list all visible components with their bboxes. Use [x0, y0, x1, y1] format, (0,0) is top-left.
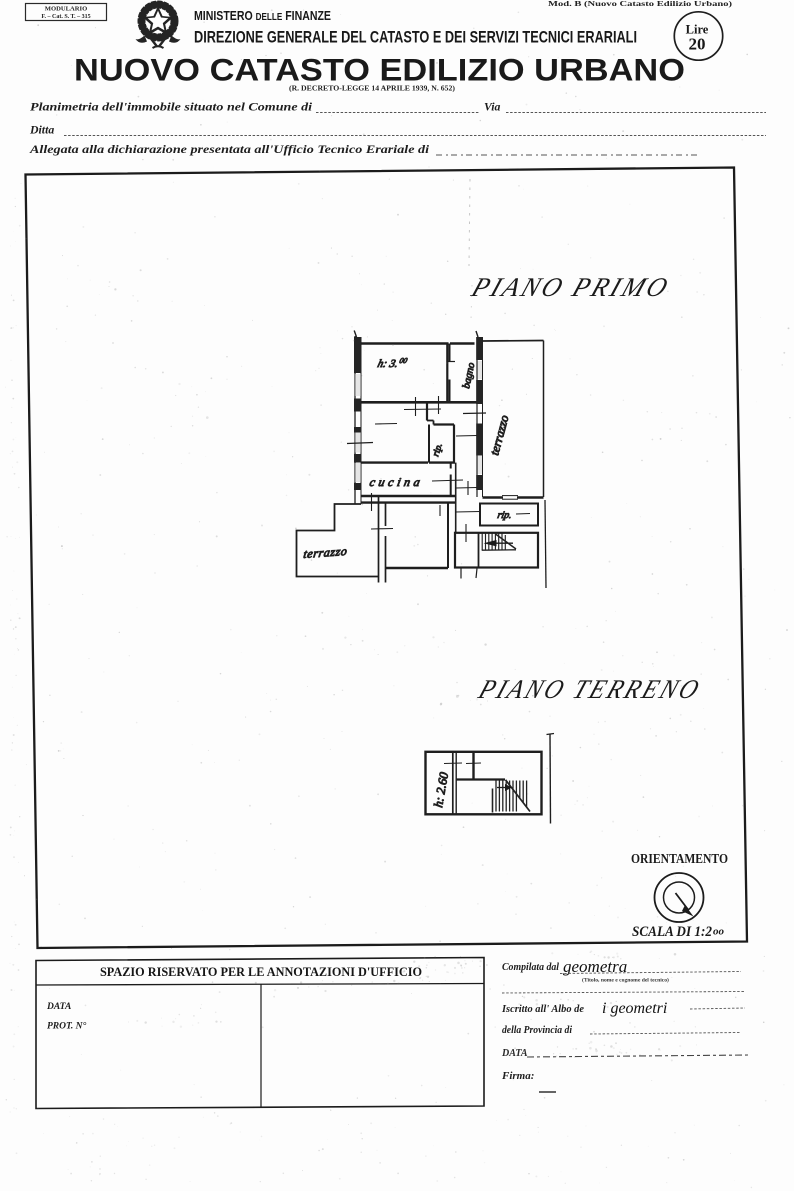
svg-text:SCALA DI 1:2: SCALA DI 1:2	[632, 924, 712, 940]
svg-text:(R. DECRETO-LEGGE 14 APRILE 19: (R. DECRETO-LEGGE 14 APRILE 1939, N. 652…	[289, 86, 455, 93]
svg-text:h: 3.: h: 3.	[376, 358, 399, 370]
svg-text:Planimetria dell'immobile situ: Planimetria dell'immobile situato nel Co…	[30, 100, 313, 114]
svg-text:Via: Via	[484, 100, 500, 114]
svg-text:Firma:: Firma:	[501, 1070, 534, 1082]
svg-text:PIANO TERRENO: PIANO TERRENO	[474, 675, 706, 705]
svg-text:rip.: rip.	[496, 510, 512, 521]
svg-text:PIANO PRIMO: PIANO PRIMO	[467, 273, 675, 303]
svg-text:SPAZIO RISERVATO PER LE ANNOTA: SPAZIO RISERVATO PER LE ANNOTAZIONI D'UF…	[100, 965, 422, 979]
svg-text:oo: oo	[713, 926, 725, 938]
svg-text:MODULARIO: MODULARIO	[45, 6, 88, 13]
svg-text:Iscritto all' Albo de: Iscritto all' Albo de	[501, 1003, 584, 1015]
svg-text:Compilata dal: Compilata dal	[502, 961, 560, 973]
svg-text:della Provincia di: della Provincia di	[502, 1024, 573, 1036]
svg-text:Mod. B (Nuovo Catasto Edilizio: Mod. B (Nuovo Catasto Edilizio Urbano)	[548, 0, 733, 8]
svg-text:F. – Cat. S. T. – 315: F. – Cat. S. T. – 315	[41, 14, 90, 20]
svg-text:Allegata alla dichiarazione pr: Allegata alla dichiarazione presentata a…	[29, 142, 430, 156]
svg-text:PROT. N°: PROT. N°	[47, 1021, 87, 1032]
svg-text:Ditta: Ditta	[29, 123, 54, 137]
svg-text:20: 20	[689, 35, 706, 54]
svg-text:cucina: cucina	[368, 475, 425, 489]
svg-text:ORIENTAMENTO: ORIENTAMENTO	[631, 851, 728, 866]
svg-text:DIREZIONE GENERALE DEL CATASTO: DIREZIONE GENERALE DEL CATASTO E DEI SER…	[194, 29, 637, 47]
svg-text:NUOVO CATASTO EDILIZIO URBANO: NUOVO CATASTO EDILIZIO URBANO	[74, 52, 685, 88]
svg-text:DATA: DATA	[46, 1002, 71, 1012]
svg-text:(Titolo, nome e cognome del te: (Titolo, nome e cognome del tecnico)	[582, 977, 669, 984]
